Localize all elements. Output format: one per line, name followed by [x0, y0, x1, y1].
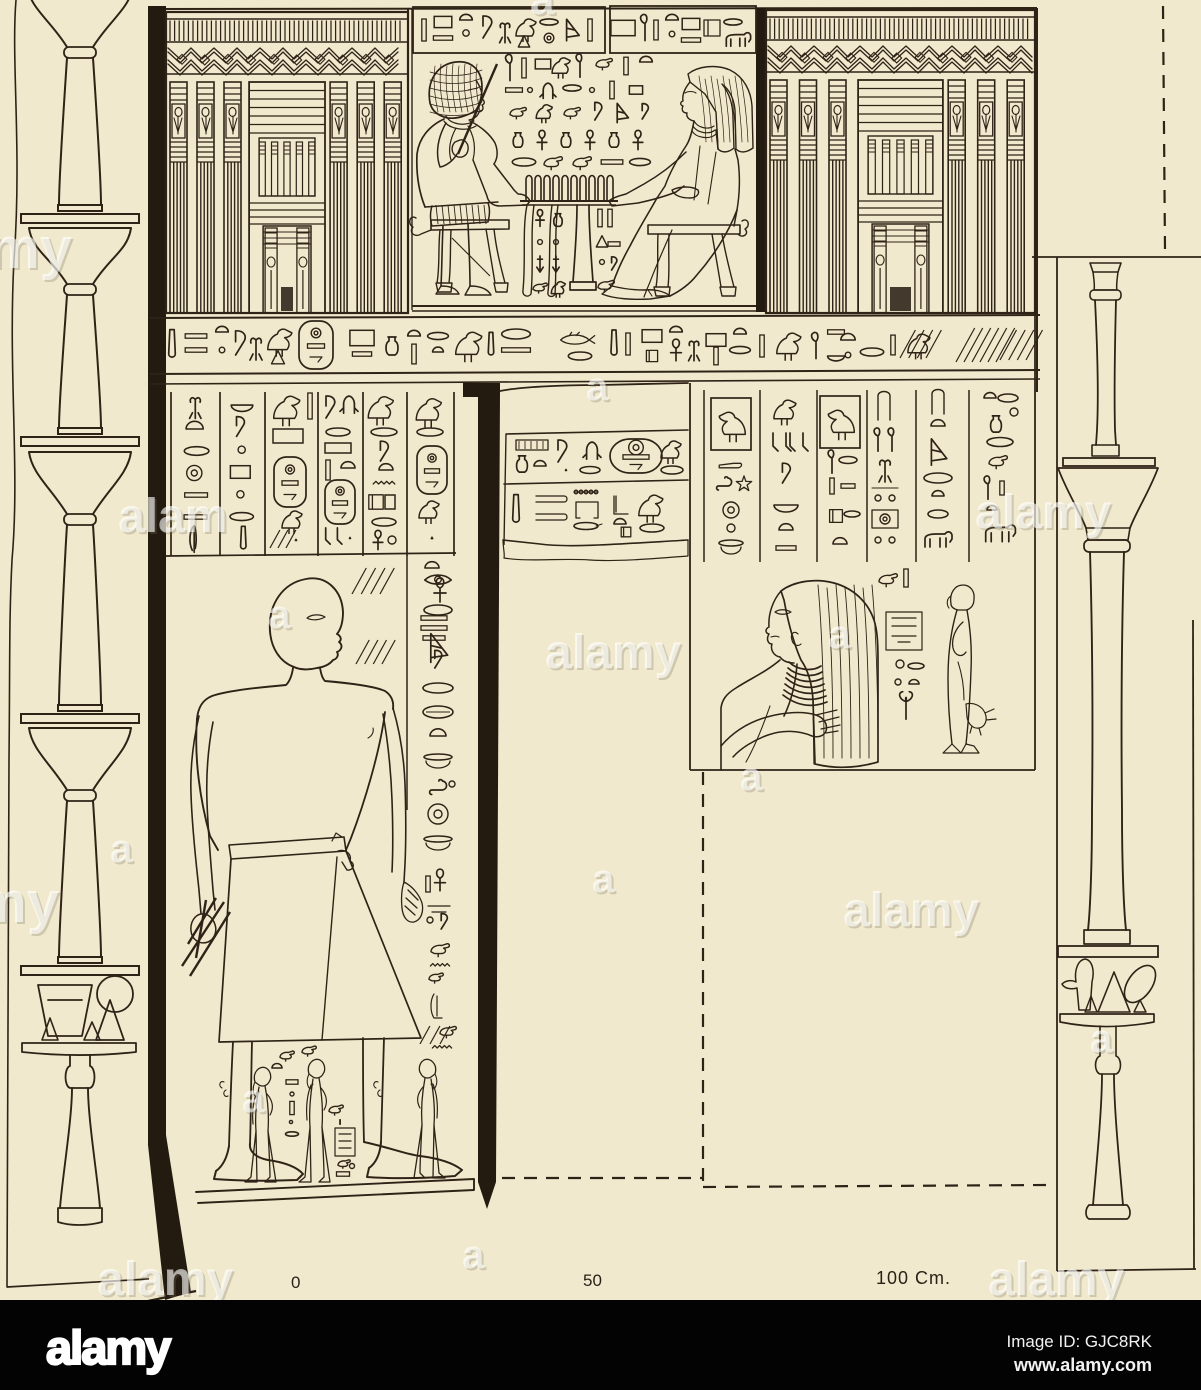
svg-text:Image ID: GJC8RK: Image ID: GJC8RK [1007, 1332, 1153, 1351]
svg-text:a: a [268, 593, 291, 637]
svg-text:a: a [592, 857, 615, 901]
svg-text:a: a [242, 1077, 265, 1121]
svg-text:alamy: alamy [46, 1321, 171, 1374]
svg-text:a: a [530, 0, 555, 24]
svg-text:a: a [1090, 1017, 1113, 1061]
svg-text:a: a [828, 613, 851, 657]
svg-text:alamy: alamy [97, 1253, 233, 1306]
svg-text:alamy: alamy [545, 626, 681, 679]
svg-text:a: a [462, 1233, 485, 1277]
svg-text:my: my [0, 216, 72, 281]
svg-text:a: a [110, 827, 133, 871]
svg-text:50: 50 [583, 1271, 602, 1290]
svg-text:alamy: alamy [843, 884, 979, 937]
svg-text:alamy: alamy [975, 486, 1111, 539]
svg-text:100 Cm.: 100 Cm. [876, 1268, 951, 1288]
svg-text:a: a [586, 365, 609, 409]
svg-text:alam: alam [118, 490, 227, 543]
svg-text:0: 0 [291, 1273, 300, 1292]
svg-text:a: a [740, 755, 763, 799]
svg-text:www.alamy.com: www.alamy.com [1013, 1355, 1152, 1375]
svg-text:my: my [0, 870, 59, 935]
svg-text:alamy: alamy [988, 1253, 1124, 1306]
